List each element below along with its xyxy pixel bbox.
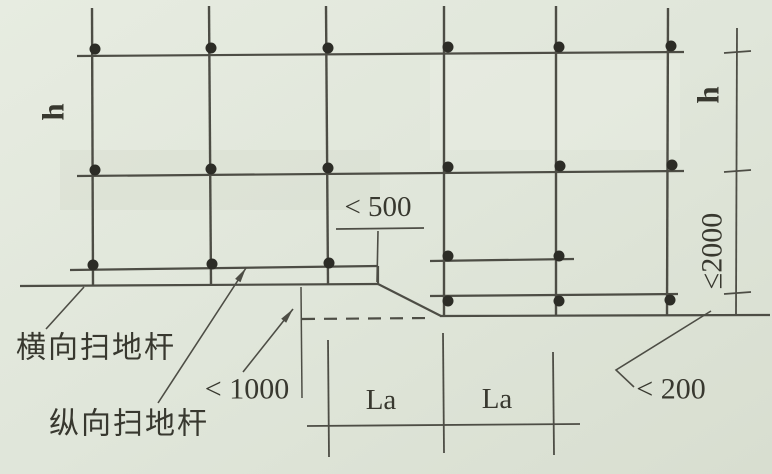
joint-dot xyxy=(206,164,217,175)
label-lt1000: < 1000 xyxy=(205,373,289,406)
joint-dot xyxy=(666,41,677,52)
joint-dot xyxy=(207,259,218,270)
joint-dot xyxy=(443,162,454,173)
joint-dot xyxy=(443,251,454,262)
joint-dot xyxy=(90,44,101,55)
joint-dot xyxy=(554,296,565,307)
label-h-right: h xyxy=(691,86,726,103)
lt500-extension-line xyxy=(377,231,378,282)
label-lt500: < 500 xyxy=(344,191,411,223)
right-ground-line xyxy=(440,315,770,316)
joint-dot xyxy=(554,42,565,53)
joint-dot xyxy=(555,161,566,172)
label-la-left: La xyxy=(366,384,397,416)
joint-dot xyxy=(324,258,335,269)
lt500-underline xyxy=(336,228,424,229)
label-transverse-sweeping-rod: 横向扫地杆 xyxy=(16,332,176,365)
scaffold-diagram: h h ≤2000 < 500 < 1000 < 200 La La 横向扫地杆… xyxy=(0,0,772,474)
label-max-2000: ≤2000 xyxy=(696,213,729,289)
label-longitudinal-sweeping-rod: 纵向扫地杆 xyxy=(49,408,209,441)
joint-dot xyxy=(323,163,334,174)
joint-dot xyxy=(90,165,101,176)
paper-stain xyxy=(60,150,380,210)
la-boundary-line-3 xyxy=(553,352,554,455)
joint-dot xyxy=(665,295,676,306)
joint-dot xyxy=(443,42,454,53)
scanned-diagram-page: h h ≤2000 < 500 < 1000 < 200 La La 横向扫地杆… xyxy=(0,0,772,474)
label-la-right: La xyxy=(482,383,513,415)
joint-dot xyxy=(323,43,334,54)
joint-dot xyxy=(443,296,454,307)
label-lt200: < 200 xyxy=(636,373,705,406)
joint-dot xyxy=(88,260,99,271)
joint-dot xyxy=(206,43,217,54)
la-boundary-line-2 xyxy=(443,333,444,453)
joint-dot xyxy=(554,251,565,262)
lt1000-extension-line xyxy=(301,287,302,398)
joint-dot xyxy=(667,160,678,171)
la-boundary-line-1 xyxy=(328,340,329,457)
label-h-left: h xyxy=(36,103,71,120)
